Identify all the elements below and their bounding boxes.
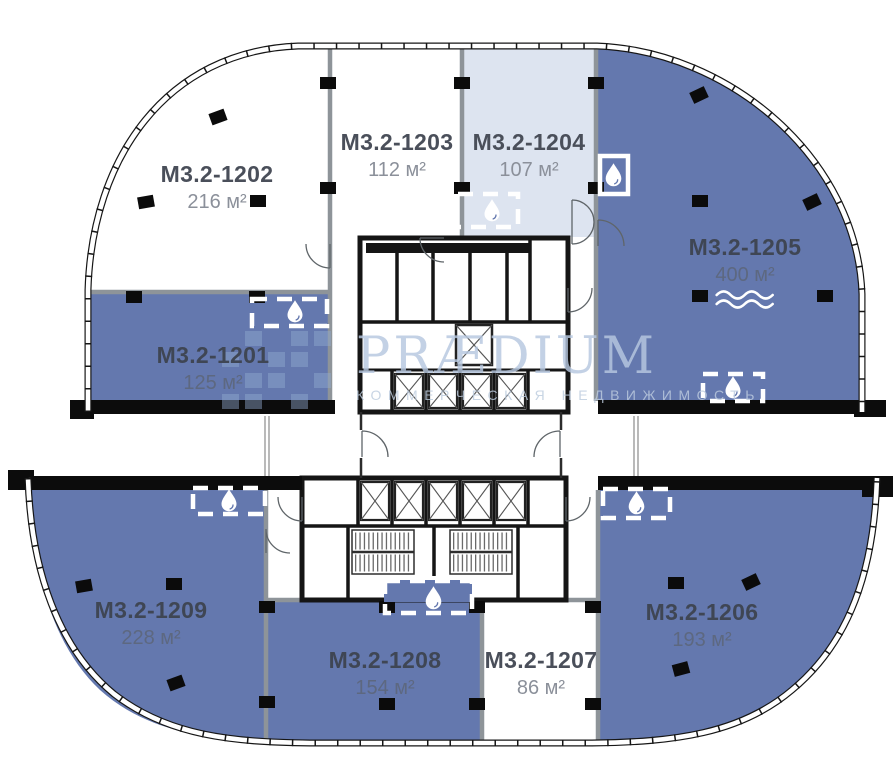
column-marker — [259, 601, 275, 613]
unit-name: M3.2-1203 — [341, 130, 454, 155]
elevator-shaft-x — [429, 374, 457, 408]
door-arc — [534, 431, 560, 457]
column-marker — [379, 698, 395, 710]
elevator-shaft-x — [456, 325, 492, 365]
unit-area: 228 м² — [95, 627, 208, 649]
unit-label-1201[interactable]: M3.2-1201 125 м² — [157, 343, 270, 394]
unit-area: 400 м² — [689, 264, 802, 286]
unit-area: 86 м² — [485, 677, 598, 699]
elevator-shaft-x — [395, 482, 423, 520]
unit-label-1209[interactable]: M3.2-1209 228 м² — [95, 598, 208, 649]
elevator-shaft-x — [497, 374, 525, 408]
unit-name: M3.2-1208 — [329, 648, 442, 673]
column-marker — [469, 698, 485, 710]
unit-area: 193 м² — [646, 629, 759, 651]
floor-plan-canvas: PRÆDIUM КОММЕРЧЕСКАЯ НЕДВИЖИМОСТЬ M3.2-1… — [0, 0, 896, 759]
elevator-shaft-x — [429, 482, 457, 520]
unit-name: M3.2-1207 — [485, 648, 598, 673]
unit-label-1207[interactable]: M3.2-1207 86 м² — [485, 648, 598, 699]
column-marker — [585, 698, 601, 710]
staircases — [352, 530, 512, 574]
elevator-shaft-x — [497, 482, 525, 520]
elevator-shaft-x — [395, 374, 423, 408]
column-marker — [320, 77, 336, 89]
expansion-joints — [265, 416, 638, 476]
unit-label-1208[interactable]: M3.2-1208 154 м² — [329, 648, 442, 699]
unit-name: M3.2-1202 — [161, 162, 274, 187]
unit-name: M3.2-1206 — [646, 600, 759, 625]
unit-name: M3.2-1205 — [689, 235, 802, 260]
unit-1205-area[interactable] — [596, 47, 860, 401]
unit-name: M3.2-1204 — [473, 130, 586, 155]
elevator-shaft-x — [463, 374, 491, 408]
column-marker — [817, 290, 833, 302]
door-arc — [568, 288, 592, 312]
door-arc — [266, 529, 290, 553]
door-arc — [278, 497, 302, 521]
column-marker — [692, 195, 708, 207]
column-marker — [259, 696, 275, 708]
unit-area: 154 м² — [329, 677, 442, 699]
elevator-shaft-x — [463, 482, 491, 520]
building-core — [302, 238, 568, 600]
staircase — [450, 530, 512, 574]
elevator-shaft-x — [361, 482, 389, 520]
unit-label-1204[interactable]: M3.2-1204 107 м² — [473, 130, 586, 181]
unit-area: 216 м² — [161, 191, 274, 213]
column-marker — [126, 291, 142, 303]
column-marker — [668, 577, 684, 589]
unit-area: 125 м² — [157, 372, 270, 394]
waves-icon — [689, 288, 802, 310]
column-marker — [454, 77, 470, 89]
staircase — [352, 530, 414, 574]
column-marker — [166, 578, 182, 590]
unit-label-1202[interactable]: M3.2-1202 216 м² — [161, 162, 274, 213]
unit-area: 112 м² — [341, 159, 454, 181]
unit-label-1203[interactable]: M3.2-1203 112 м² — [341, 130, 454, 181]
unit-area: 107 м² — [473, 159, 586, 181]
unit-label-1205[interactable]: M3.2-1205 400 м² — [689, 235, 802, 310]
column-marker — [585, 601, 601, 613]
unit-label-1206[interactable]: M3.2-1206 193 м² — [646, 600, 759, 651]
door-arc — [566, 497, 590, 521]
column-marker — [588, 77, 604, 89]
door-arc — [362, 431, 388, 457]
unit-name: M3.2-1209 — [95, 598, 208, 623]
unit-name: M3.2-1201 — [157, 343, 270, 368]
elevator-shafts — [361, 325, 525, 520]
column-marker — [320, 182, 336, 194]
